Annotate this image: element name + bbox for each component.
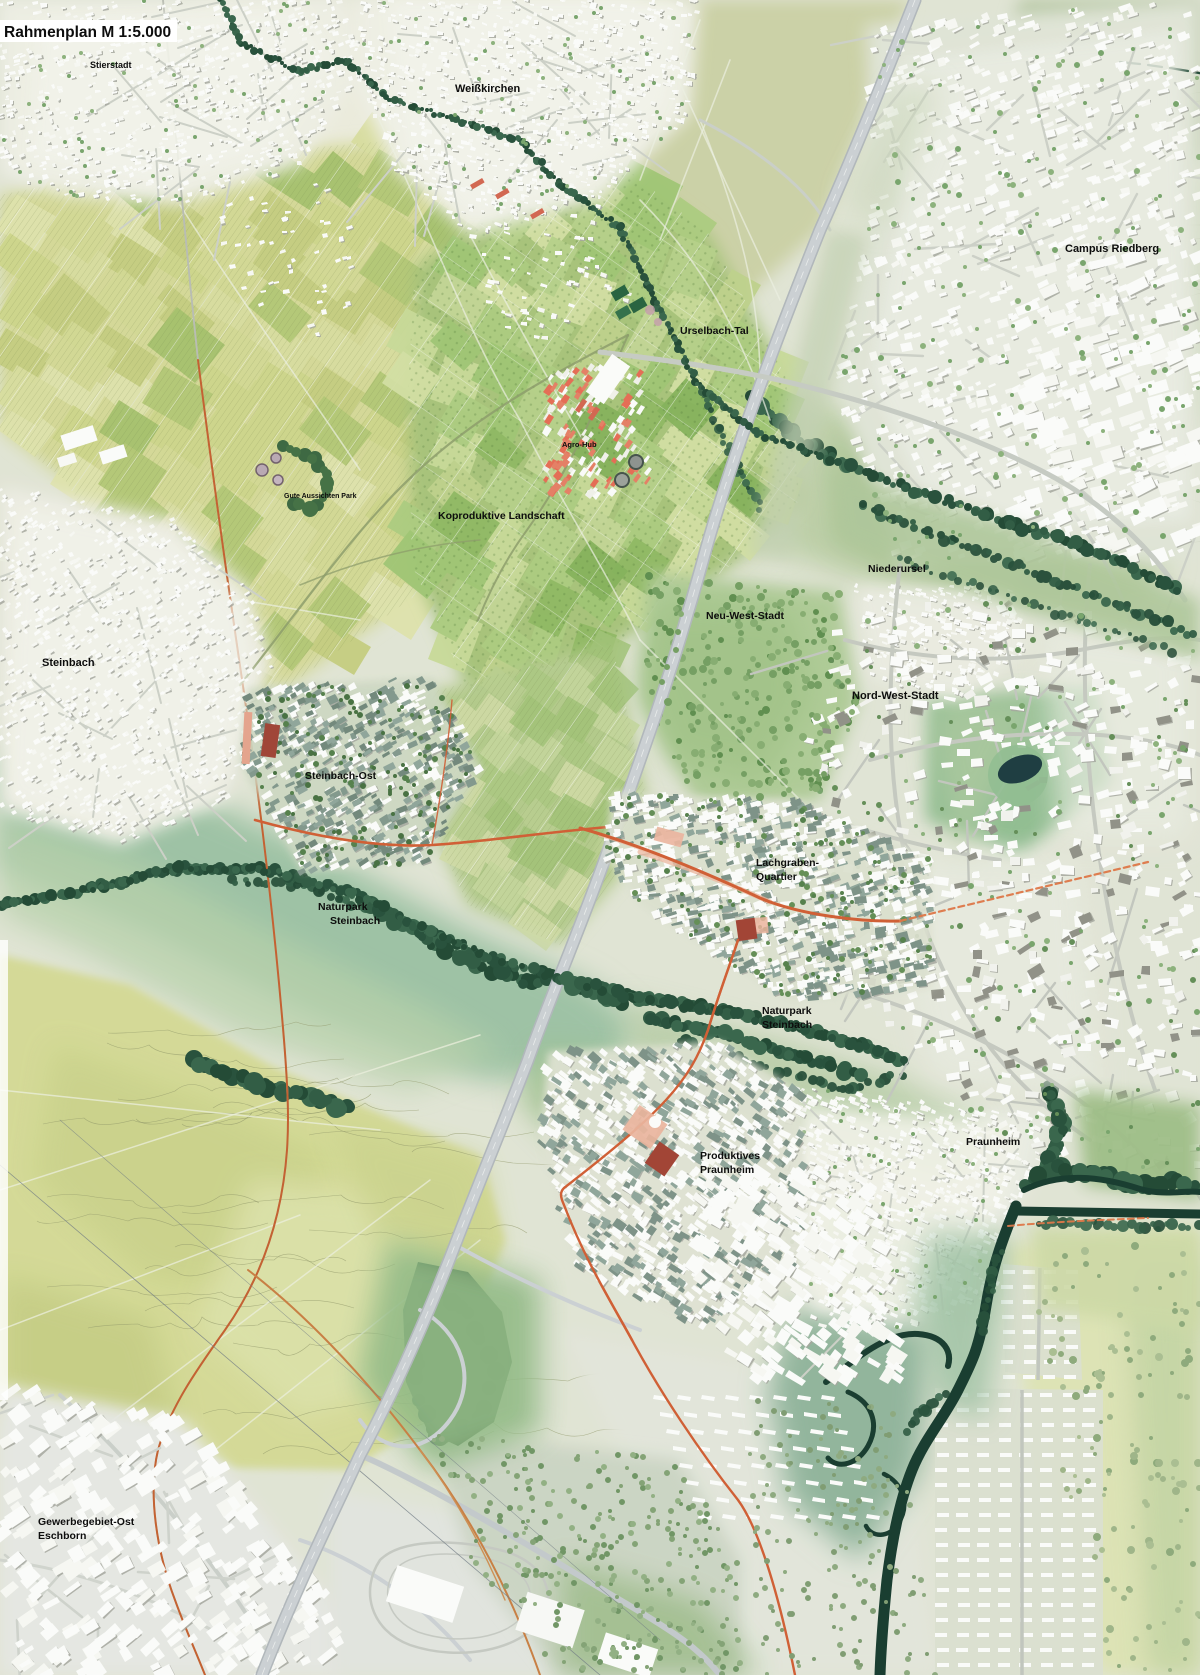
svg-text:Steinbach: Steinbach bbox=[330, 915, 380, 927]
svg-text:Neu-West-Stadt: Neu-West-Stadt bbox=[706, 610, 784, 622]
svg-text:Weißkirchen: Weißkirchen bbox=[455, 83, 520, 95]
svg-text:Gewerbegebiet-Ost: Gewerbegebiet-Ost bbox=[38, 1516, 135, 1528]
svg-text:Steinbach: Steinbach bbox=[42, 657, 95, 669]
svg-text:Praunheim: Praunheim bbox=[966, 1136, 1020, 1148]
svg-text:Koproduktive Landschaft: Koproduktive Landschaft bbox=[438, 510, 565, 522]
svg-text:Rahmenplan M 1:5.000: Rahmenplan M 1:5.000 bbox=[4, 24, 171, 41]
svg-text:Agro-Hub: Agro-Hub bbox=[562, 440, 597, 449]
svg-text:Produktives: Produktives bbox=[700, 1150, 760, 1162]
svg-text:Quartier: Quartier bbox=[756, 871, 797, 883]
svg-text:Praunheim: Praunheim bbox=[700, 1164, 754, 1176]
svg-text:Naturpark: Naturpark bbox=[762, 1005, 812, 1017]
svg-text:Niederursel: Niederursel bbox=[868, 563, 926, 575]
svg-text:Steinbach: Steinbach bbox=[762, 1019, 812, 1031]
svg-text:Gute Aussichten Park: Gute Aussichten Park bbox=[284, 493, 357, 500]
svg-text:Lachgraben-: Lachgraben- bbox=[756, 857, 820, 869]
svg-text:Steinbach-Ost: Steinbach-Ost bbox=[305, 770, 377, 782]
svg-text:Naturpark: Naturpark bbox=[318, 901, 368, 913]
svg-text:Urselbach-Tal: Urselbach-Tal bbox=[680, 325, 749, 337]
svg-text:Campus Riedberg: Campus Riedberg bbox=[1065, 243, 1159, 255]
svg-text:Eschborn: Eschborn bbox=[38, 1530, 86, 1542]
svg-text:Nord-West-Stadt: Nord-West-Stadt bbox=[852, 690, 939, 702]
svg-text:Stierstadt: Stierstadt bbox=[90, 60, 132, 70]
